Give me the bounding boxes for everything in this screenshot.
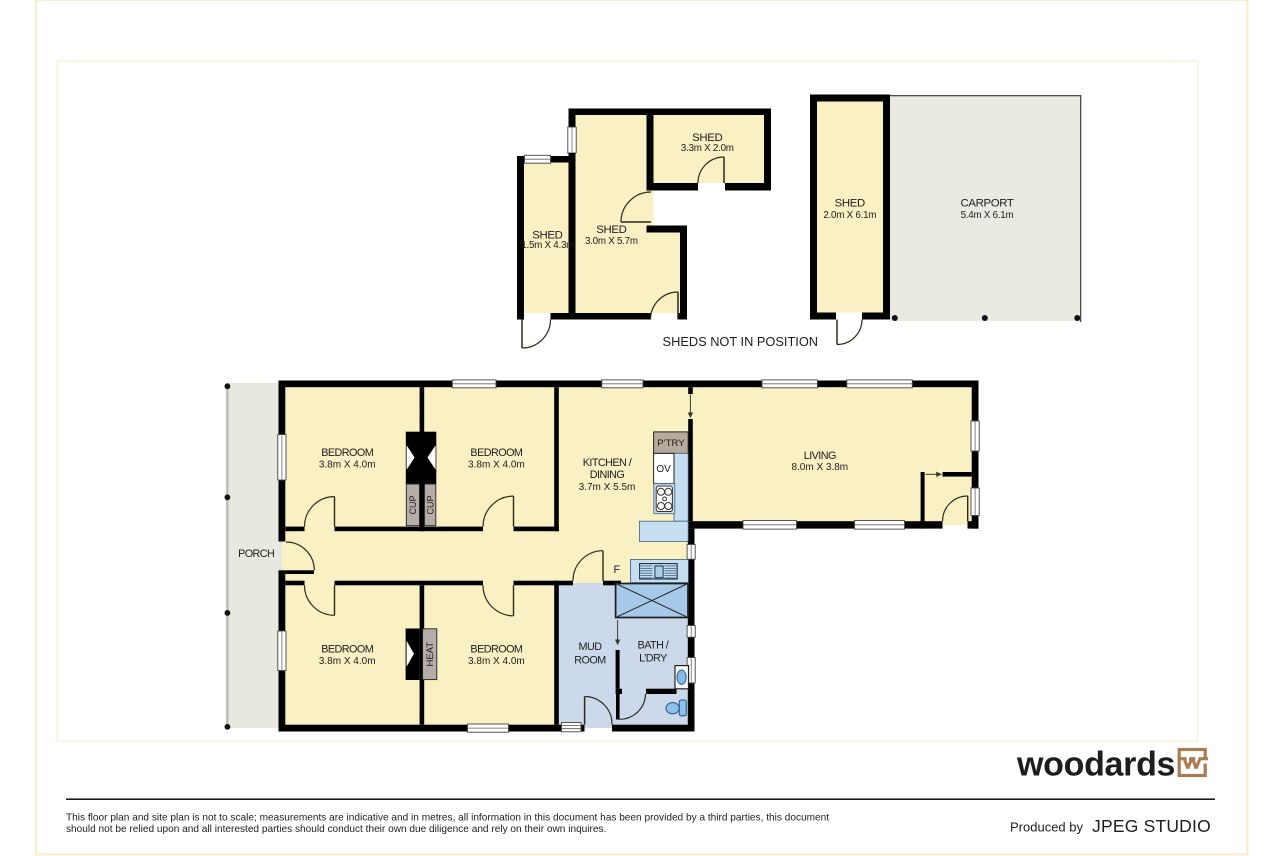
svg-text:PORCH: PORCH (238, 548, 274, 560)
svg-text:woodards: woodards (1016, 746, 1175, 784)
svg-text:OV: OV (656, 464, 671, 475)
svg-text:BEDROOM: BEDROOM (470, 644, 522, 656)
svg-text:SHED: SHED (596, 224, 626, 236)
svg-text:should not be relied upon and: should not be relied upon and all intere… (66, 824, 606, 835)
svg-text:CUP: CUP (408, 495, 418, 514)
svg-text:BEDROOM: BEDROOM (321, 447, 373, 459)
svg-text:L’DRY: L’DRY (639, 653, 667, 665)
svg-text:LIVING: LIVING (804, 450, 836, 462)
svg-text:3.8m X 4.0m: 3.8m X 4.0m (319, 460, 376, 471)
svg-text:SHED: SHED (835, 198, 865, 210)
svg-text:BEDROOM: BEDROOM (321, 644, 373, 656)
svg-text:5.4m X 6.1m: 5.4m X 6.1m (961, 210, 1014, 221)
svg-text:KITCHEN /: KITCHEN / (583, 457, 632, 469)
svg-text:P’TRY: P’TRY (657, 438, 685, 449)
svg-text:3.8m X 4.0m: 3.8m X 4.0m (319, 656, 376, 667)
svg-text:1.5m X 4.3m: 1.5m X 4.3m (521, 240, 574, 251)
svg-text:3.0m X 5.7m: 3.0m X 5.7m (585, 236, 638, 247)
svg-text:CARPORT: CARPORT (960, 198, 1013, 210)
svg-text:3.7m X 5.5m: 3.7m X 5.5m (579, 482, 636, 493)
svg-text:JPEG STUDIO: JPEG STUDIO (1092, 816, 1211, 836)
svg-text:CUP: CUP (425, 495, 435, 514)
svg-text:ROOM: ROOM (574, 654, 606, 666)
svg-text:BATH /: BATH / (638, 639, 669, 651)
svg-text:F: F (613, 564, 620, 576)
svg-text:Produced by: Produced by (1010, 820, 1083, 835)
svg-text:2.0m X 6.1m: 2.0m X 6.1m (823, 210, 876, 221)
svg-text:DINING: DINING (590, 469, 625, 481)
svg-text:BEDROOM: BEDROOM (470, 447, 522, 459)
svg-text:HEAT: HEAT (425, 642, 436, 667)
svg-text:SHEDS NOT IN POSITION: SHEDS NOT IN POSITION (663, 334, 818, 349)
svg-text:3.8m X 4.0m: 3.8m X 4.0m (468, 460, 525, 471)
svg-text:This floor plan and site plan: This floor plan and site plan is not to … (66, 812, 829, 823)
svg-text:3.8m X 4.0m: 3.8m X 4.0m (468, 656, 525, 667)
svg-text:MUD: MUD (579, 641, 603, 653)
svg-text:8.0m X 3.8m: 8.0m X 3.8m (791, 462, 848, 473)
svg-text:3.3m X 2.0m: 3.3m X 2.0m (681, 143, 734, 154)
